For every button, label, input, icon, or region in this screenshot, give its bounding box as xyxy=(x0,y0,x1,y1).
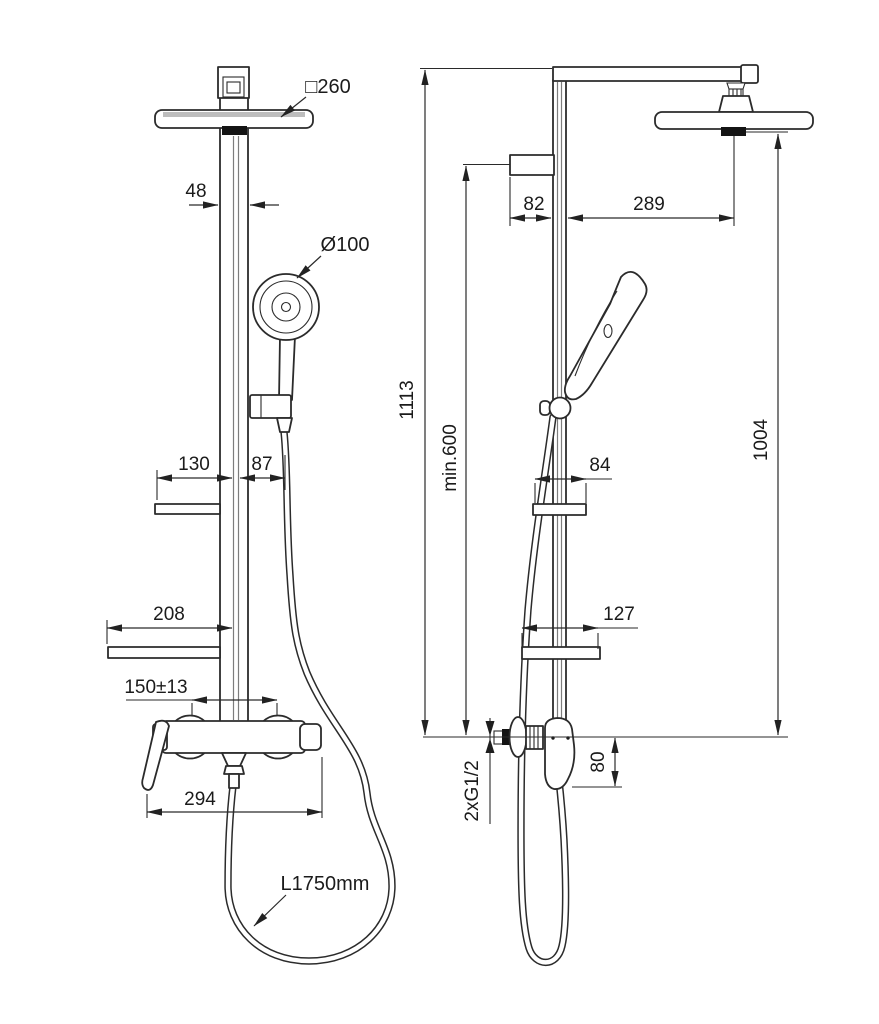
side-head-arm xyxy=(553,65,758,112)
front-mixer-valve xyxy=(142,716,321,790)
dim-min-clearance-600: min.600 xyxy=(440,165,510,736)
front-lower-shelf xyxy=(108,647,220,658)
dim-hose-length: L1750mm xyxy=(254,873,369,926)
dim-label-shelf-right: 87 xyxy=(251,454,272,475)
dim-handle-drop-80: 80 xyxy=(572,738,622,787)
dim-label-head-reach: 289 xyxy=(633,194,665,215)
dim-label-lower-shelf: 208 xyxy=(153,604,185,625)
side-rain-head xyxy=(655,112,813,136)
front-view: 48 □260 Ø100 130 87 208 1 xyxy=(107,67,392,961)
technical-drawing-page: 48 □260 Ø100 130 87 208 1 xyxy=(0,0,879,1024)
dim-mount-centers-150: 150±13 xyxy=(124,677,277,715)
side-lower-shelf xyxy=(522,647,600,659)
dim-bracket-82-reach-289: 82 289 xyxy=(510,136,734,226)
dim-hand-shower-diameter-100: Ø100 xyxy=(297,234,369,278)
front-soap-shelf xyxy=(155,504,220,514)
front-hand-shower xyxy=(250,274,319,432)
front-rain-head xyxy=(155,110,313,135)
dim-label-mount-centers: 150±13 xyxy=(124,677,187,698)
side-mixer-body xyxy=(545,718,574,789)
front-hand-shower-holder xyxy=(250,395,291,418)
dim-label-connections: 2xG1/2 xyxy=(462,760,483,821)
dim-label-total-height: 1113 xyxy=(397,380,418,419)
dim-label-head-square: □260 xyxy=(305,76,350,98)
dim-lower-shelf-208: 208 xyxy=(107,604,232,644)
side-holder-knob xyxy=(540,401,550,415)
shower-system-dimension-drawing: 48 □260 Ø100 130 87 208 1 xyxy=(0,0,879,1024)
dim-lower-shelf-depth-127: 127 xyxy=(522,604,638,649)
dim-label-min-clearance: min.600 xyxy=(440,424,461,492)
side-wall-bracket xyxy=(510,155,554,175)
front-top-connector xyxy=(218,67,249,98)
dim-label-soap-shelf-depth: 84 xyxy=(589,455,611,476)
side-head-nozzle xyxy=(721,127,746,136)
dim-label-shelf-left: 130 xyxy=(178,454,210,475)
dim-connections-g12: 2xG1/2 xyxy=(462,760,483,821)
dim-label-column-width: 48 xyxy=(185,181,206,202)
dim-label-bracket-depth: 82 xyxy=(523,194,544,215)
dim-head-height-1004: 1004 xyxy=(746,132,788,735)
side-soap-shelf xyxy=(533,504,586,515)
side-view: 1113 min.600 82 289 1004 84 xyxy=(397,65,813,962)
front-mixer-lever xyxy=(142,721,169,790)
dim-label-mixer-width: 294 xyxy=(184,789,216,810)
dim-label-lower-shelf-depth: 127 xyxy=(603,604,635,625)
dim-label-hand-diameter: Ø100 xyxy=(321,234,370,256)
dim-label-head-height: 1004 xyxy=(751,418,772,461)
dim-label-handle-drop: 80 xyxy=(588,751,609,772)
dim-total-height-1113: 1113 xyxy=(397,70,425,735)
front-head-nozzle xyxy=(222,126,247,135)
dim-label-hose-length: L1750mm xyxy=(281,873,370,895)
